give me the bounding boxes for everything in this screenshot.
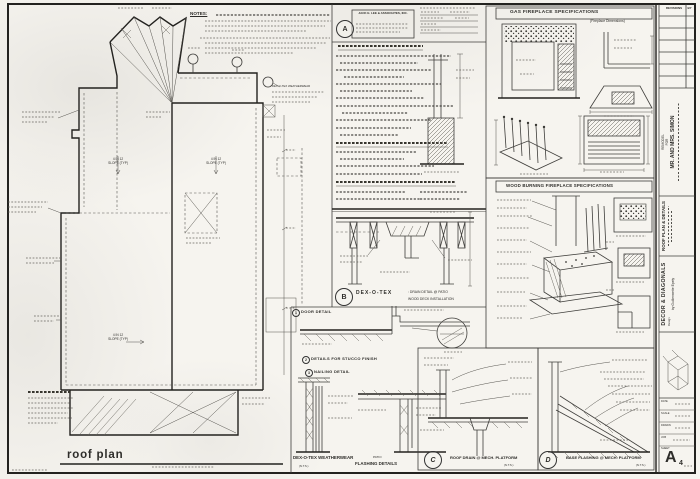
gas-dimensions-label: (Fireplace Dimensions) (590, 20, 625, 24)
handwritten-calculations (336, 46, 474, 199)
plan-title: roof plan (67, 449, 123, 462)
nailing-detail-label: NAILING DETAIL (314, 370, 350, 374)
revisions-header: REVISIONS (662, 7, 686, 10)
project-line2: FOR (665, 92, 669, 192)
weatherwear-nts: (N.T.S.) (299, 465, 308, 468)
field-job-label: JOB (661, 437, 666, 440)
revisions-by-header: BY (688, 7, 692, 10)
stucco-detail-number: 2 (302, 356, 310, 364)
detail-b-drawing (336, 212, 474, 286)
detail-b-title: DEX-O-TEX (356, 291, 392, 297)
sheet-borders (8, 4, 695, 473)
field-date-label: DATE (661, 401, 668, 404)
stucco-details-drawing (296, 378, 446, 452)
titleblock-firm: DECOR & DIAGONALS Design by Guillermette… (661, 258, 675, 330)
slope-label: 4 IN 12 SLOPE (TYP) (102, 158, 134, 165)
field-scale-label: SCALE (661, 413, 670, 416)
drawing-sheet: NOTES: roof plan 4 IN 12 SLOPE (TYP) 4 I… (0, 0, 700, 479)
weatherwear-caption-title: DEX-O-TEX WEATHERWEAR (293, 456, 353, 461)
door-detail-label: DOOR DETAIL (301, 310, 332, 314)
stucco-detail-label: DETAILS FOR STUCCO FINISH (311, 357, 377, 361)
firm-designer: by Guillermette Epely (671, 258, 675, 330)
detail-b-subtitle1: : DRAIN DETAIL @ PATIO (408, 291, 448, 295)
stamp-firm-name: JACK E. LEE & ASSOCIATES, INC. (353, 12, 413, 15)
sheet-title-note (671, 210, 673, 242)
titleblock-sheet-title: ROOF PLAN & DETAILS (661, 198, 674, 254)
detail-b-subtitle2: WOOD DECK INSTALLATION (408, 298, 454, 302)
detail-marker-c: C (424, 451, 442, 469)
slope-label: 4 IN 12 SLOPE (TYP) (200, 158, 232, 165)
flashing-details-label: FLASHING DETAILS (355, 462, 397, 467)
nailing-detail-number: 3 (305, 369, 313, 377)
handwritten-notes-top (200, 15, 331, 53)
sheet-linework (0, 0, 700, 479)
field-drawn-label: DRAWN (661, 425, 671, 428)
wood-fireplace-box (486, 178, 654, 348)
gas-fireplace-box (486, 6, 654, 178)
detail-c-nts: (N.T.S.) (504, 464, 513, 467)
detail-d-nts: (N.T.S.) (636, 464, 645, 467)
detail-marker-a: A (336, 20, 354, 38)
weatherwear-plan-note: DEX-O-TEX WEATHERWEAR (272, 85, 310, 88)
sheet-title-text: ROOF PLAN & DETAILS (661, 198, 666, 254)
sheet-letter: A (665, 449, 677, 467)
wood-fireplace-title: WOOD BURNING FIREPLACE SPECIFICATIONS (506, 184, 613, 189)
gas-fireplace-title: GAS FIREPLACE SPECIFICATIONS (510, 10, 599, 15)
detail-marker-b: B (335, 288, 353, 306)
project-address-note (678, 103, 680, 181)
roof-plan-drawing (8, 8, 324, 470)
slope-label: 4 IN 12 SLOPE (TYP) (102, 334, 134, 341)
project-client: MR. AND MRS. SIMON (670, 92, 676, 192)
detail-c-title: ROOF DRAIN @ MECH. PLATFORM (450, 456, 517, 460)
detail-d-box (538, 348, 654, 470)
sheet-title-note (668, 206, 670, 246)
patio-label: PATIO (373, 456, 382, 459)
titleblock-project: REMODEL FOR MR. AND MRS. SIMON (661, 92, 681, 192)
detail-marker-d: D (539, 451, 557, 469)
door-detail-number: 1 (292, 309, 300, 317)
sheet-number: 4 (679, 460, 683, 468)
notes-heading: NOTES: (190, 11, 207, 16)
detail-d-title: BASE FLASHING @ MECH. PLATFORM (566, 456, 641, 460)
